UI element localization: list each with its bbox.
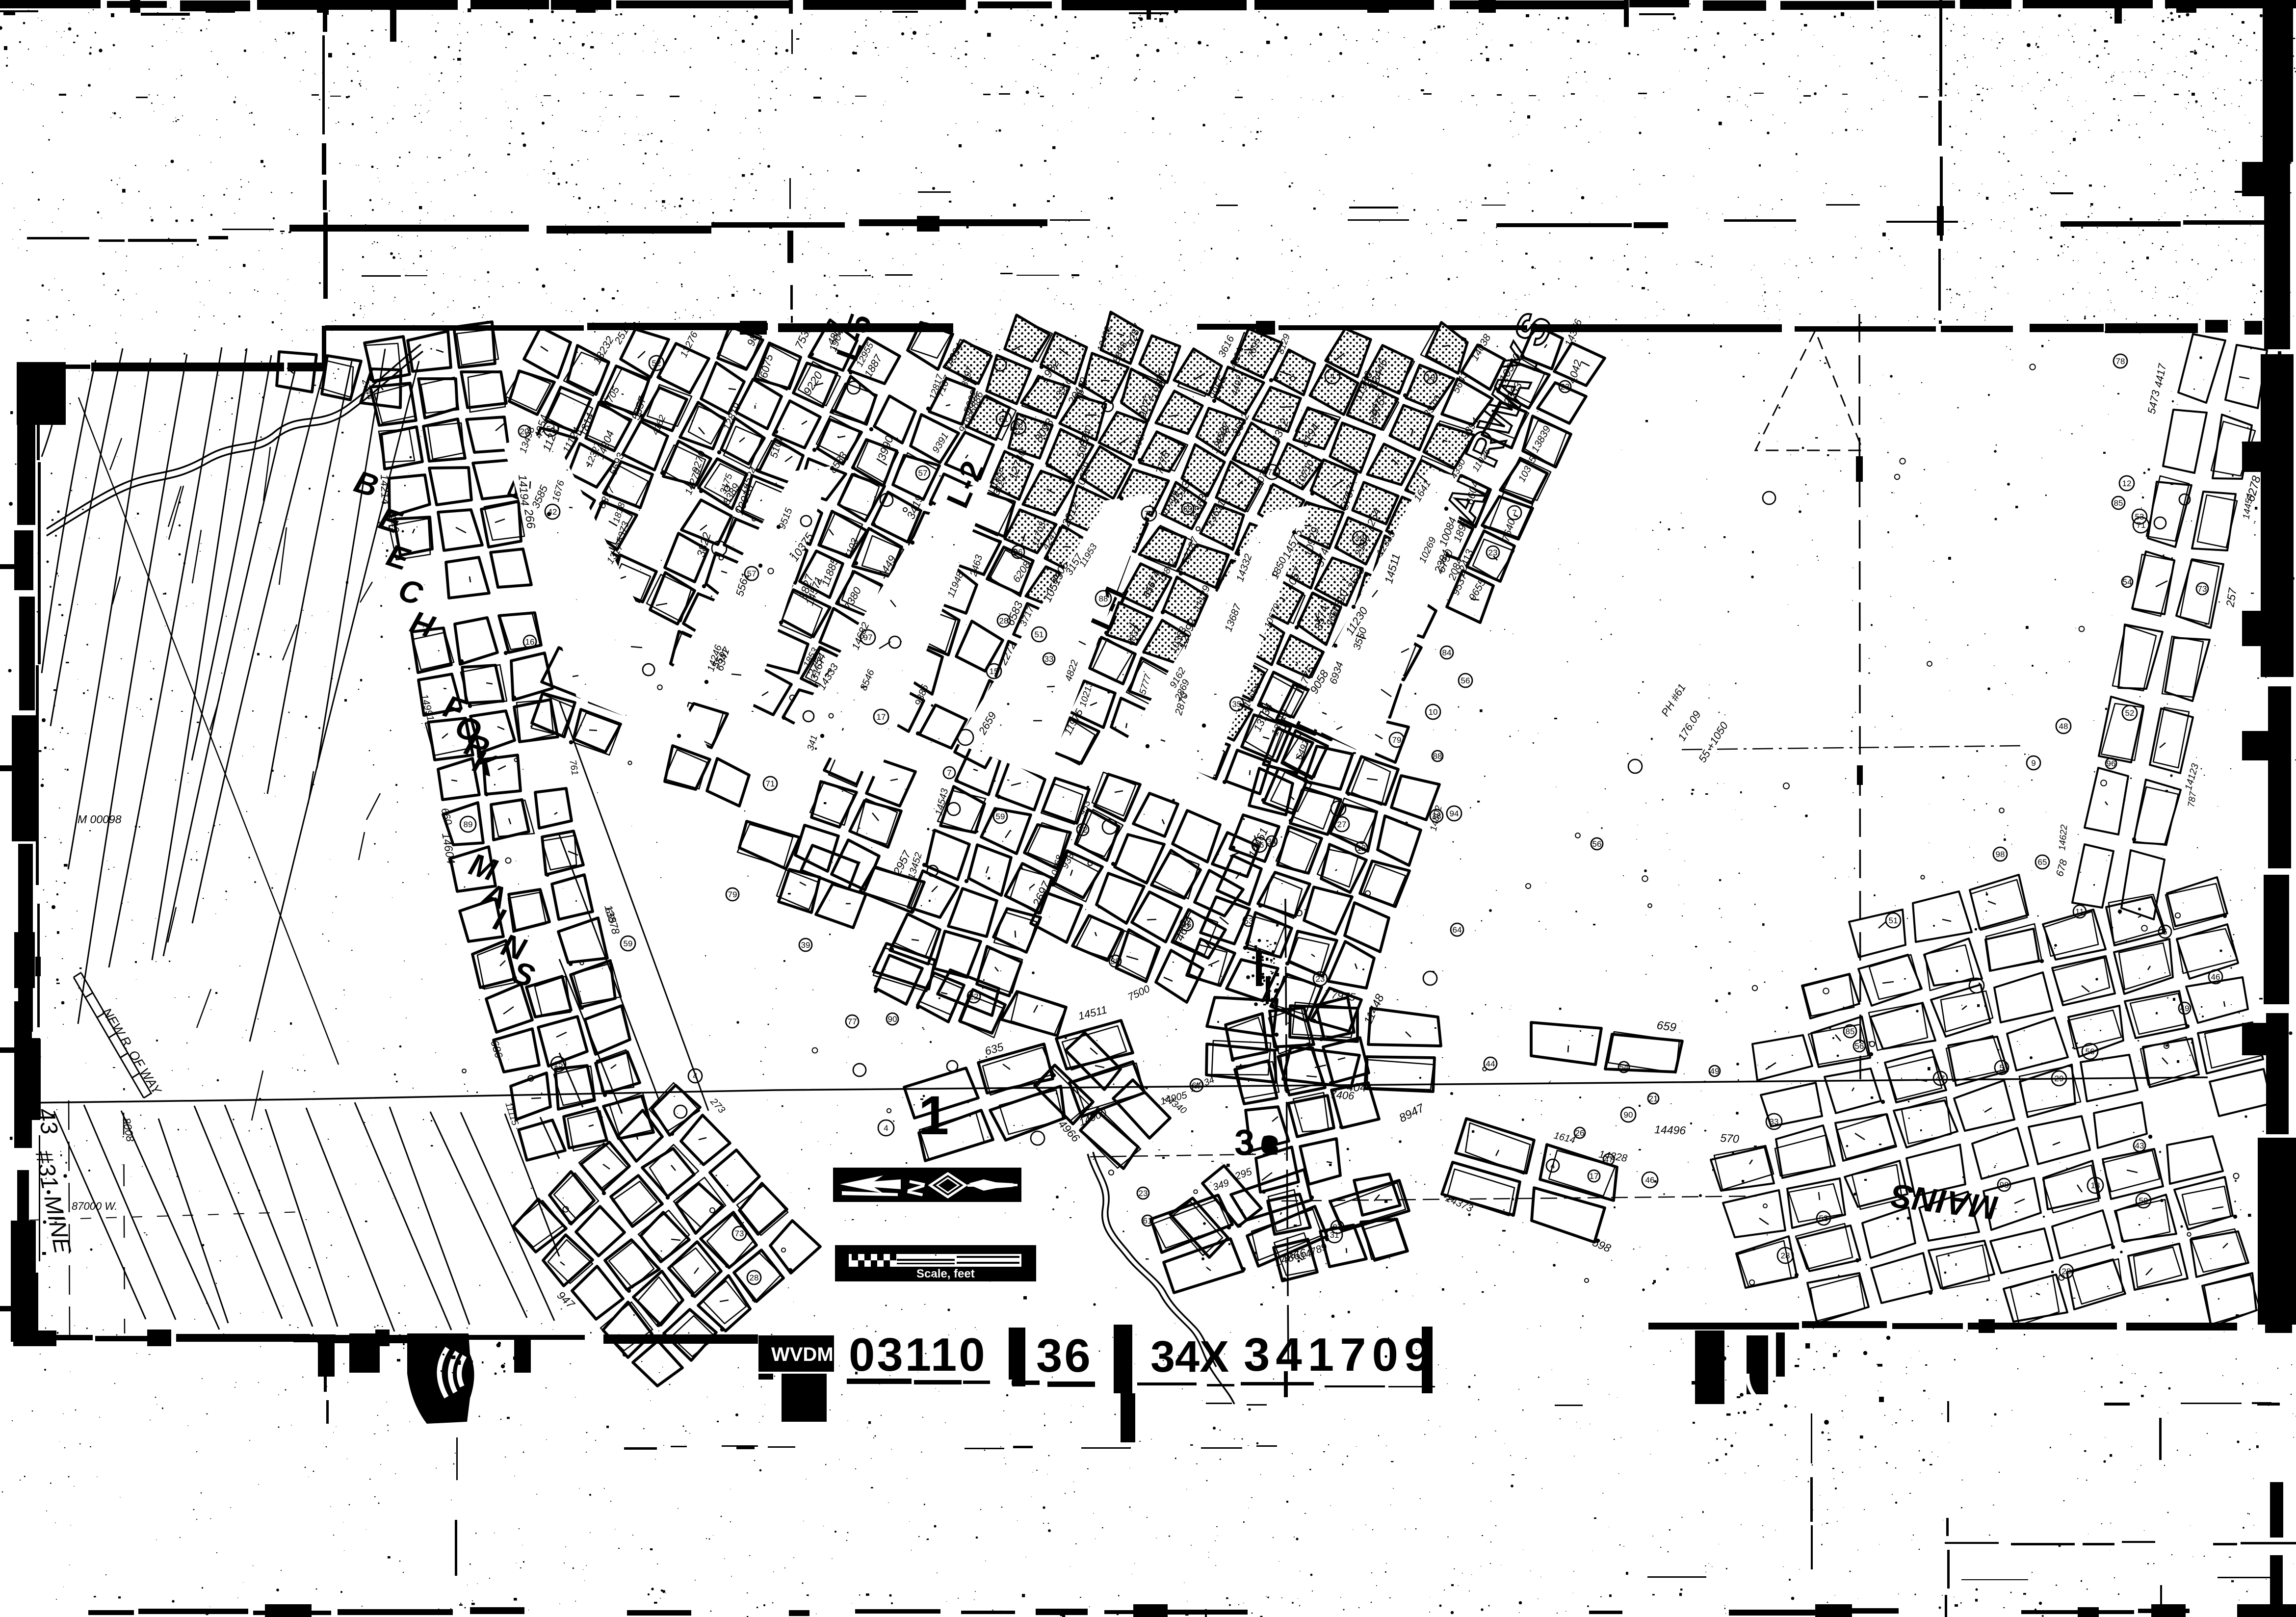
svg-text:4: 4 <box>1330 372 1334 381</box>
svg-text:33: 33 <box>1770 1117 1779 1126</box>
svg-text:12: 12 <box>1014 422 1023 432</box>
svg-text:71: 71 <box>766 779 775 788</box>
svg-text:56: 56 <box>2086 1047 2095 1056</box>
svg-text:90: 90 <box>1624 1110 1633 1120</box>
svg-text:59: 59 <box>2139 1196 2148 1205</box>
svg-text:89: 89 <box>464 820 473 829</box>
svg-text:21: 21 <box>1649 1094 1658 1103</box>
svg-text:49: 49 <box>2180 1004 2190 1013</box>
svg-text:17: 17 <box>1590 1172 1599 1181</box>
svg-text:88: 88 <box>1433 752 1442 761</box>
svg-text:16: 16 <box>1182 920 1192 929</box>
svg-text:10: 10 <box>1429 707 1438 717</box>
svg-text:54: 54 <box>2123 577 2132 587</box>
svg-text:54: 54 <box>547 424 556 434</box>
svg-text:54: 54 <box>1619 1063 1629 1072</box>
svg-text:4: 4 <box>693 1071 697 1081</box>
svg-text:28: 28 <box>750 1273 759 1282</box>
svg-text:5: 5 <box>2163 927 2167 937</box>
svg-text:47: 47 <box>1604 1155 1614 1164</box>
svg-text:23: 23 <box>1139 1189 1148 1198</box>
svg-text:341709: 341709 <box>1244 1329 1436 1381</box>
svg-text:53: 53 <box>1244 916 1253 926</box>
svg-text:59: 59 <box>624 939 633 948</box>
svg-text:64: 64 <box>1192 1081 1201 1090</box>
svg-text:43: 43 <box>2135 1141 2144 1150</box>
svg-text:59: 59 <box>996 812 1005 821</box>
svg-text:33: 33 <box>1044 654 1054 664</box>
svg-text:29: 29 <box>2055 1074 2064 1083</box>
svg-text:52: 52 <box>2125 708 2135 718</box>
svg-text:1: 1 <box>918 1085 949 1146</box>
svg-text:56: 56 <box>1461 676 1470 685</box>
svg-text:85: 85 <box>2114 498 2123 508</box>
svg-text:5: 5 <box>1999 1063 2004 1072</box>
svg-text:52: 52 <box>652 359 661 368</box>
svg-text:64: 64 <box>1453 925 1462 935</box>
svg-text:15: 15 <box>554 1060 563 1069</box>
svg-text:43: 43 <box>32 1106 62 1137</box>
svg-text:11: 11 <box>2075 907 2084 916</box>
svg-text:57: 57 <box>918 469 928 478</box>
svg-text:79: 79 <box>1392 735 1402 745</box>
svg-text:404: 404 <box>1347 1081 1367 1095</box>
svg-text:77: 77 <box>848 1017 857 1026</box>
svg-text:48: 48 <box>2059 722 2068 731</box>
svg-text:65: 65 <box>2038 858 2047 867</box>
svg-text:72: 72 <box>1078 825 1088 835</box>
svg-text:14194: 14194 <box>516 474 531 506</box>
svg-text:46: 46 <box>1645 1175 1655 1185</box>
svg-text:23: 23 <box>1316 974 1325 984</box>
svg-text:32: 32 <box>1355 534 1364 543</box>
svg-text:73: 73 <box>2198 584 2207 594</box>
svg-text:42: 42 <box>548 507 557 517</box>
svg-text:56: 56 <box>1855 1042 1864 1051</box>
svg-text:61: 61 <box>1143 1216 1152 1226</box>
svg-text:87000 W.: 87000 W. <box>72 1200 117 1212</box>
svg-text:71: 71 <box>2137 521 2146 530</box>
svg-text:7: 7 <box>1512 508 1516 518</box>
svg-text:69: 69 <box>1183 504 1193 514</box>
svg-text:57: 57 <box>747 569 757 578</box>
svg-text:39: 39 <box>801 940 810 950</box>
svg-text:28: 28 <box>1781 1251 1790 1260</box>
svg-text:44: 44 <box>1486 1059 1495 1069</box>
svg-text:4: 4 <box>1550 1161 1555 1171</box>
svg-text:23: 23 <box>1561 382 1570 391</box>
svg-text:23: 23 <box>1488 548 1498 557</box>
svg-text:51: 51 <box>999 415 1009 424</box>
svg-text:20: 20 <box>520 427 529 436</box>
svg-text:18: 18 <box>1432 811 1441 821</box>
svg-text:12: 12 <box>2122 479 2132 488</box>
svg-text:9: 9 <box>2031 758 2035 768</box>
svg-text:49: 49 <box>1710 1067 1720 1076</box>
svg-text:53: 53 <box>1819 1214 1828 1223</box>
svg-text:19: 19 <box>1426 373 1435 382</box>
svg-text:78: 78 <box>2116 357 2125 366</box>
svg-text:98: 98 <box>2000 1180 2009 1190</box>
svg-text:27: 27 <box>1337 820 1347 829</box>
svg-text:15: 15 <box>990 667 999 676</box>
svg-text:35: 35 <box>1232 700 1242 709</box>
svg-text:570: 570 <box>1720 1131 1740 1146</box>
svg-text:36: 36 <box>1255 840 1264 850</box>
svg-text:659: 659 <box>1656 1018 1677 1034</box>
svg-text:73: 73 <box>1268 468 1277 477</box>
svg-text:26: 26 <box>1575 1128 1585 1138</box>
svg-text:36: 36 <box>1036 1330 1093 1382</box>
svg-text:47: 47 <box>1936 1074 1945 1083</box>
svg-text:17: 17 <box>877 712 886 722</box>
svg-text:28: 28 <box>2062 1267 2071 1276</box>
svg-text:WVDM: WVDM <box>771 1344 834 1365</box>
svg-text:51: 51 <box>1889 916 1898 925</box>
svg-text:7975: 7975 <box>1331 989 1356 1003</box>
svg-text:73: 73 <box>735 1229 744 1238</box>
svg-text:14214: 14214 <box>378 474 391 504</box>
svg-text:97: 97 <box>863 633 873 642</box>
svg-text:22: 22 <box>969 992 979 1001</box>
svg-text:28: 28 <box>999 616 1009 626</box>
svg-text:18: 18 <box>2091 1181 2100 1190</box>
svg-text:51: 51 <box>1035 630 1044 639</box>
svg-text:38: 38 <box>1111 957 1120 966</box>
svg-text:94: 94 <box>1450 809 1459 818</box>
svg-text:84: 84 <box>1442 648 1452 657</box>
svg-text:90: 90 <box>888 1015 897 1024</box>
svg-text:96: 96 <box>2107 759 2116 768</box>
svg-text:7: 7 <box>947 768 951 778</box>
svg-text:98: 98 <box>1996 850 2005 859</box>
svg-text:56: 56 <box>1592 839 1602 849</box>
svg-text:14496: 14496 <box>1654 1123 1686 1137</box>
svg-text:31: 31 <box>1330 1230 1339 1240</box>
svg-text:Scale, feet: Scale, feet <box>916 1267 975 1280</box>
svg-text:4: 4 <box>884 1123 888 1133</box>
svg-text:46: 46 <box>2211 972 2220 982</box>
svg-text:34: 34 <box>1267 837 1277 846</box>
svg-text:03110: 03110 <box>849 1329 987 1381</box>
svg-text:M 00098: M 00098 <box>78 813 122 826</box>
svg-text:53: 53 <box>2135 512 2144 522</box>
svg-text:16: 16 <box>525 637 535 647</box>
svg-text:79: 79 <box>728 890 737 899</box>
svg-text:71: 71 <box>1145 509 1154 519</box>
svg-text:12: 12 <box>1357 843 1366 853</box>
svg-text:34X: 34X <box>1150 1332 1229 1382</box>
svg-text:3: 3 <box>1234 1122 1254 1163</box>
svg-text:85: 85 <box>1846 1027 1855 1036</box>
